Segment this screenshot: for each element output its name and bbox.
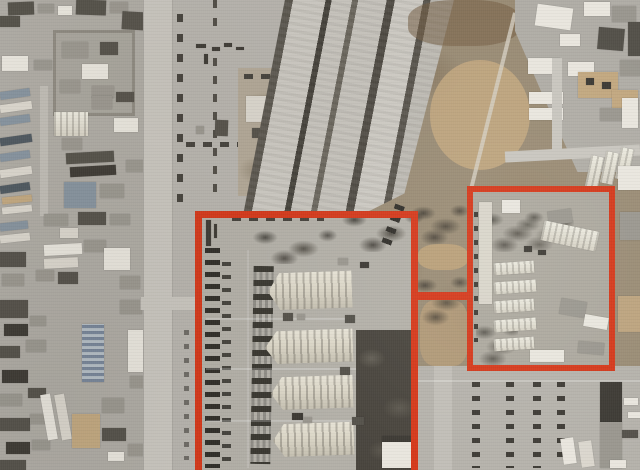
building bbox=[2, 274, 24, 286]
ribbed-building bbox=[82, 324, 104, 382]
vehicle bbox=[624, 398, 638, 405]
building bbox=[36, 270, 54, 281]
building bbox=[628, 22, 640, 56]
building bbox=[120, 276, 140, 289]
building bbox=[44, 257, 78, 269]
building bbox=[100, 184, 124, 198]
building bbox=[4, 324, 28, 336]
vehicle bbox=[628, 412, 640, 418]
building bbox=[58, 272, 78, 284]
satellite-image bbox=[0, 0, 640, 470]
street bbox=[40, 86, 48, 216]
street bbox=[552, 58, 562, 150]
building bbox=[0, 394, 22, 406]
building bbox=[84, 240, 106, 252]
building bbox=[72, 414, 100, 448]
building bbox=[2, 370, 28, 383]
building bbox=[62, 42, 88, 58]
highlight-box-main bbox=[195, 211, 418, 470]
parking-row bbox=[506, 382, 514, 468]
building bbox=[0, 418, 30, 431]
building bbox=[92, 96, 112, 109]
building bbox=[32, 440, 50, 450]
building bbox=[0, 346, 20, 358]
highlight-connector bbox=[415, 292, 471, 300]
building bbox=[0, 300, 28, 318]
building bbox=[612, 6, 636, 22]
building bbox=[622, 98, 638, 128]
building bbox=[60, 80, 80, 93]
building bbox=[44, 214, 68, 226]
crossing-road bbox=[140, 297, 198, 310]
building bbox=[34, 60, 52, 70]
building bbox=[2, 56, 28, 71]
building bbox=[120, 300, 142, 314]
building bbox=[586, 78, 594, 85]
building bbox=[104, 248, 130, 270]
building bbox=[584, 2, 610, 16]
building bbox=[560, 34, 580, 46]
building bbox=[196, 126, 204, 134]
building bbox=[602, 82, 611, 89]
building bbox=[620, 212, 640, 240]
building bbox=[60, 228, 78, 238]
building bbox=[30, 316, 46, 326]
building bbox=[76, 0, 107, 16]
dirt-dark-strip bbox=[408, 0, 520, 46]
building bbox=[618, 166, 640, 190]
building bbox=[8, 2, 34, 16]
building bbox=[600, 108, 622, 121]
building bbox=[0, 460, 26, 470]
parking-row bbox=[533, 382, 541, 468]
apron-marking bbox=[204, 54, 208, 64]
building bbox=[26, 340, 46, 352]
building bbox=[215, 120, 229, 136]
building bbox=[108, 452, 124, 461]
building bbox=[6, 442, 30, 454]
building bbox=[114, 118, 138, 132]
building bbox=[62, 138, 82, 150]
building bbox=[110, 214, 130, 225]
roadside-marks bbox=[184, 330, 189, 460]
apron-marking bbox=[236, 47, 244, 50]
building bbox=[38, 4, 54, 13]
building bbox=[44, 243, 83, 256]
warehouse bbox=[54, 112, 88, 136]
building bbox=[0, 252, 26, 267]
building bbox=[618, 296, 640, 332]
building bbox=[620, 60, 640, 76]
building bbox=[0, 16, 20, 27]
main-road bbox=[143, 0, 173, 470]
parking-row bbox=[472, 382, 480, 468]
apron-marking bbox=[224, 43, 232, 47]
building bbox=[116, 92, 134, 102]
apron-marking bbox=[212, 47, 220, 51]
highlight-box-secondary bbox=[467, 186, 615, 371]
vehicle bbox=[622, 430, 638, 438]
building bbox=[82, 64, 108, 79]
apron-marking bbox=[196, 44, 206, 48]
building bbox=[102, 398, 124, 413]
building bbox=[78, 212, 106, 225]
building bbox=[126, 160, 144, 172]
roadside-marks bbox=[177, 14, 183, 214]
taxiway-dash-line bbox=[213, 0, 217, 26]
building bbox=[597, 27, 625, 51]
building bbox=[100, 42, 118, 55]
building bbox=[64, 182, 96, 208]
taxiway-dash-line bbox=[186, 142, 244, 147]
building bbox=[58, 6, 72, 15]
vehicle bbox=[610, 460, 626, 468]
building bbox=[600, 382, 622, 422]
building bbox=[102, 428, 126, 441]
